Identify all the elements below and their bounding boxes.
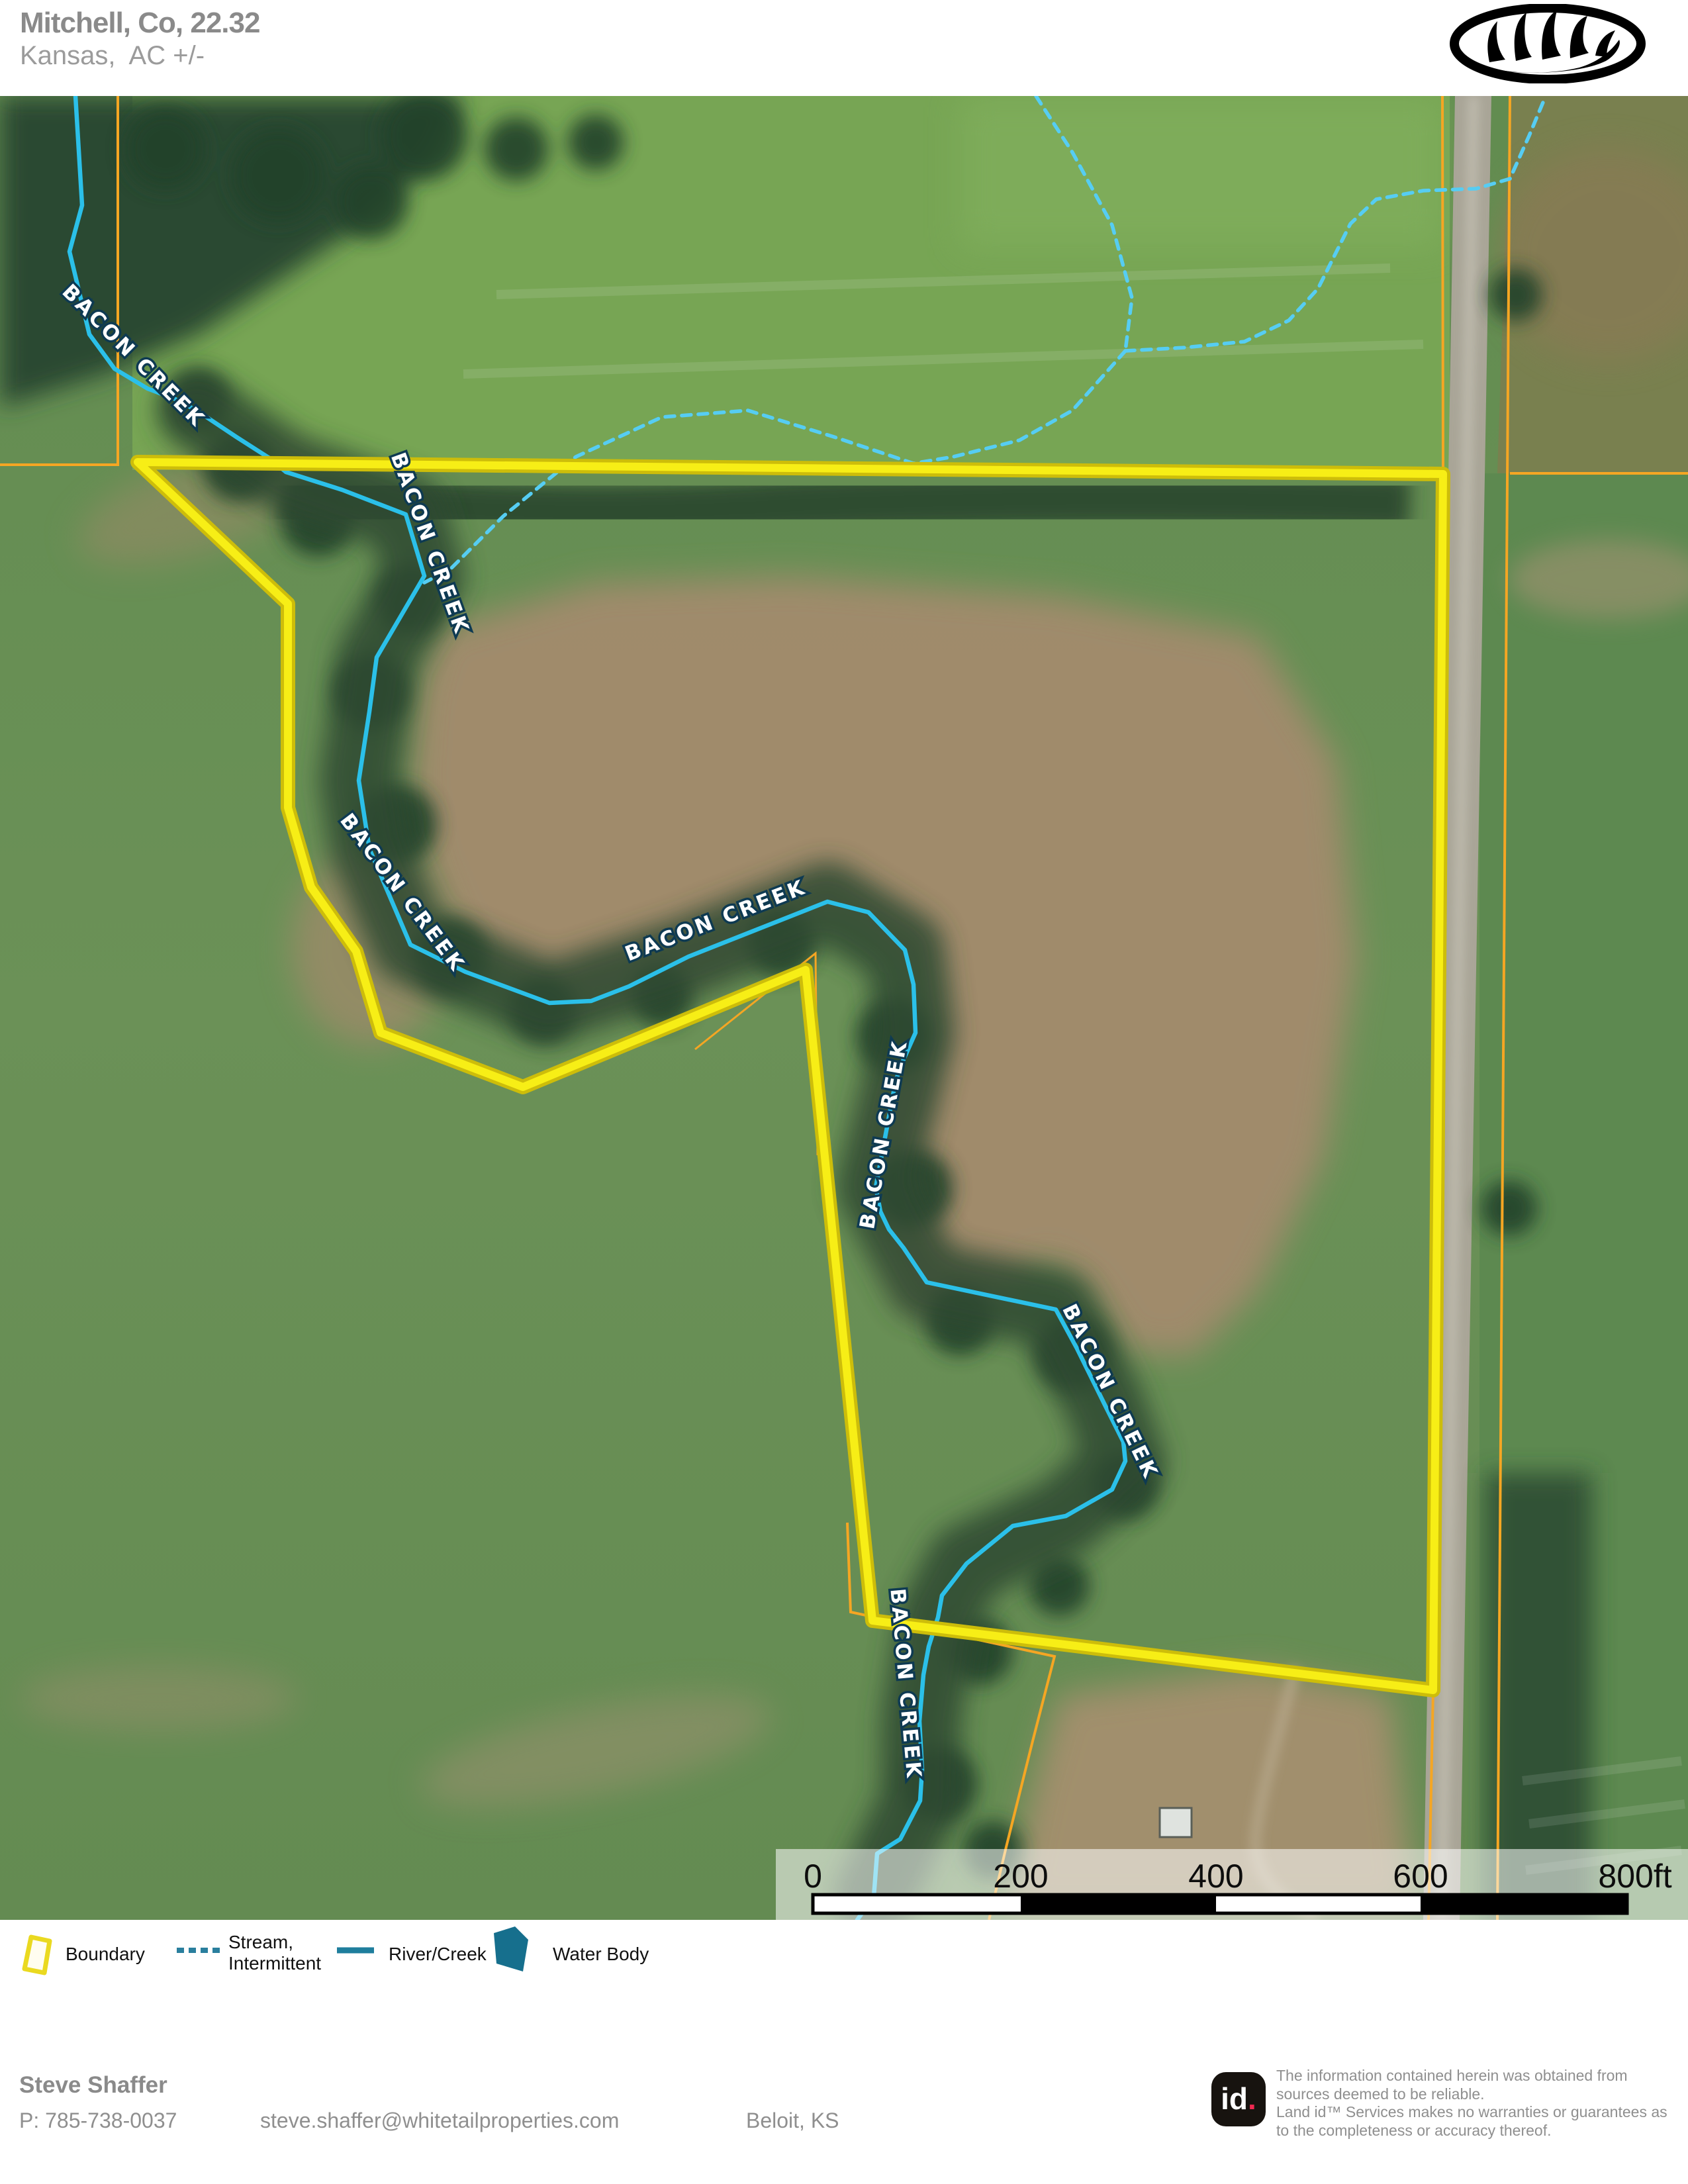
scale-bar: 0 200 400 600 800ft	[776, 1849, 1688, 1920]
water-body-legend-icon	[490, 1925, 532, 1978]
agent-email[interactable]: steve.shaffer@whitetailproperties.com	[260, 2109, 619, 2133]
aerial-map: BACON CREEK BACON CREEK BACON CREEK BACO…	[0, 96, 1688, 1920]
scale-tick: 800ft	[1598, 1858, 1671, 1895]
land-id-logo-text: id	[1221, 2081, 1248, 2116]
property-map-report-page: Mitchell, Co, 22.32 Kansas, AC +/-	[0, 0, 1688, 2184]
scale-tick: 600	[1393, 1858, 1448, 1895]
legend-label-stream: Stream, Intermittent	[228, 1932, 321, 1974]
map-canvas: BACON CREEK BACON CREEK BACON CREEK BACO…	[0, 96, 1688, 1920]
agent-city: Beloit, KS	[746, 2109, 839, 2133]
whitetail-properties-antler-logo-icon	[1448, 4, 1647, 83]
map-legend: Boundary Stream, Intermittent River/Cree…	[0, 1920, 1688, 1999]
agent-phone: P: 785-738-0037	[19, 2109, 177, 2133]
page-subtitle: Kansas, AC +/-	[20, 41, 205, 71]
legend-label-river: River/Creek	[389, 1944, 487, 1965]
boundary-legend-icon	[17, 1932, 58, 1975]
river-creek-legend-icon	[336, 1946, 375, 1954]
legend-label-water-body: Water Body	[553, 1944, 649, 1965]
farm-building	[1160, 1808, 1192, 1837]
land-id-logo: id.	[1211, 2072, 1266, 2126]
scale-tick: 0	[804, 1858, 822, 1895]
disclaimer-text: The information contained herein was obt…	[1276, 2067, 1673, 2140]
header: Mitchell, Co, 22.32 Kansas, AC +/-	[0, 0, 1688, 96]
land-id-logo-dot: .	[1248, 2081, 1256, 2116]
scale-tick: 200	[993, 1858, 1048, 1895]
stream-intermittent-legend-icon	[175, 1946, 222, 1954]
agent-name: Steve Shaffer	[19, 2072, 167, 2099]
scale-tick: 400	[1188, 1858, 1243, 1895]
footer: Steve Shaffer P: 785-738-0037 steve.shaf…	[0, 2046, 1688, 2184]
legend-label-boundary: Boundary	[66, 1944, 145, 1965]
north-treeline	[285, 493, 1410, 512]
page-title: Mitchell, Co, 22.32	[20, 7, 259, 40]
